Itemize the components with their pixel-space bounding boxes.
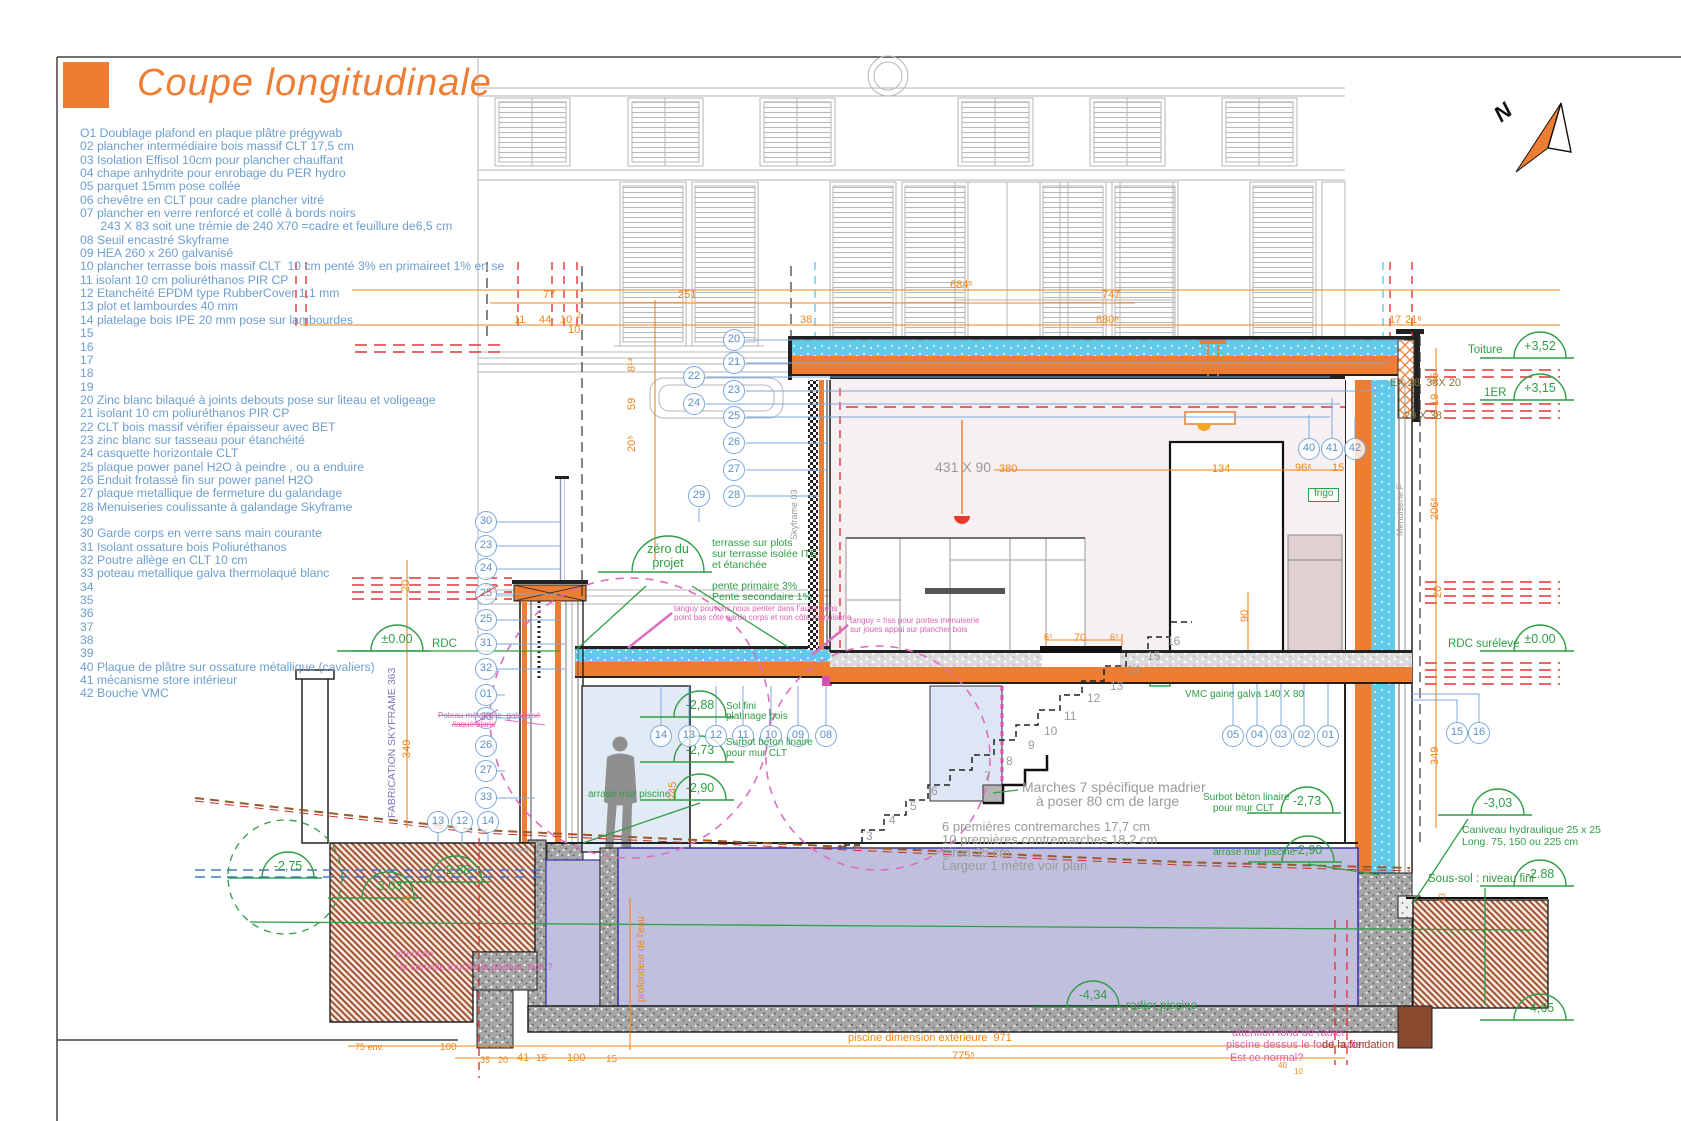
svg-text:-2,88: -2,88 [686, 698, 715, 712]
svg-text:1ER: 1ER [1484, 387, 1506, 399]
svg-text:Sous-sol : niveau fini: Sous-sol : niveau fini [1428, 873, 1534, 885]
level-marks-layer: +3,52Toiture+3,151ER±0.00RDC surélevé-3,… [0, 0, 1681, 1121]
level-mark: -2.88Sous-sol : niveau fini [1428, 860, 1574, 886]
svg-text:-3,03: -3,03 [1484, 796, 1513, 810]
level-mark: +3,151ER [1480, 374, 1574, 400]
svg-text:-3,03: -3,03 [374, 879, 403, 893]
level-mark: -2,88 [640, 691, 734, 717]
svg-text:Caniveau hydraulique 25 x 25: Caniveau hydraulique 25 x 25 [1462, 824, 1601, 836]
level-mark: -3,03 [328, 872, 422, 898]
svg-text:+3,52: +3,52 [1524, 339, 1556, 353]
svg-text:RDC: RDC [432, 638, 457, 650]
svg-text:-2,90: -2,90 [686, 781, 715, 795]
level-mark: -3,03Caniveau hydraulique 25 x 25Long. 7… [1438, 789, 1601, 848]
svg-text:-2.88: -2.88 [442, 863, 471, 877]
level-mark: -2,73 [640, 736, 734, 762]
level-mark: ±0.00RDC surélevé [1448, 625, 1574, 651]
level-mark: zéro duprojet [598, 536, 712, 572]
level-mark: +3,52Toiture [1468, 332, 1574, 358]
svg-text:Toiture: Toiture [1468, 344, 1503, 356]
svg-text:-2,73: -2,73 [686, 743, 715, 757]
level-mark: -4,34 [1033, 981, 1127, 1007]
svg-text:-2,75: -2,75 [274, 859, 303, 873]
level-mark: -2,90 [640, 774, 734, 800]
svg-text:Long. 75, 150 ou 225 cm: Long. 75, 150 ou 225 cm [1462, 836, 1578, 848]
level-mark: -4,65 [1480, 994, 1574, 1020]
svg-text:±0.00: ±0.00 [381, 632, 412, 646]
level-mark: -2,75 [228, 852, 322, 878]
svg-text:-2,73: -2,73 [1293, 794, 1322, 808]
svg-text:-4,65: -4,65 [1526, 1001, 1555, 1015]
svg-text:±0.00: ±0.00 [1524, 632, 1555, 646]
svg-text:-4,34: -4,34 [1079, 988, 1108, 1002]
level-mark: -2,73 [1247, 787, 1341, 813]
svg-text:+3,15: +3,15 [1524, 381, 1556, 395]
svg-text:zéro du: zéro du [647, 542, 689, 556]
level-mark: ±0.00RDC [337, 625, 457, 651]
drawing-sheet: N Coupe longitudinale O1 Doublage plafon… [0, 0, 1681, 1121]
level-mark: -2.88 [396, 856, 490, 882]
svg-text:RDC surélevé: RDC surélevé [1448, 638, 1520, 650]
svg-text:projet: projet [652, 556, 684, 570]
level-mark: -2,90 [1248, 836, 1342, 862]
svg-text:-2,90: -2,90 [1294, 843, 1323, 857]
